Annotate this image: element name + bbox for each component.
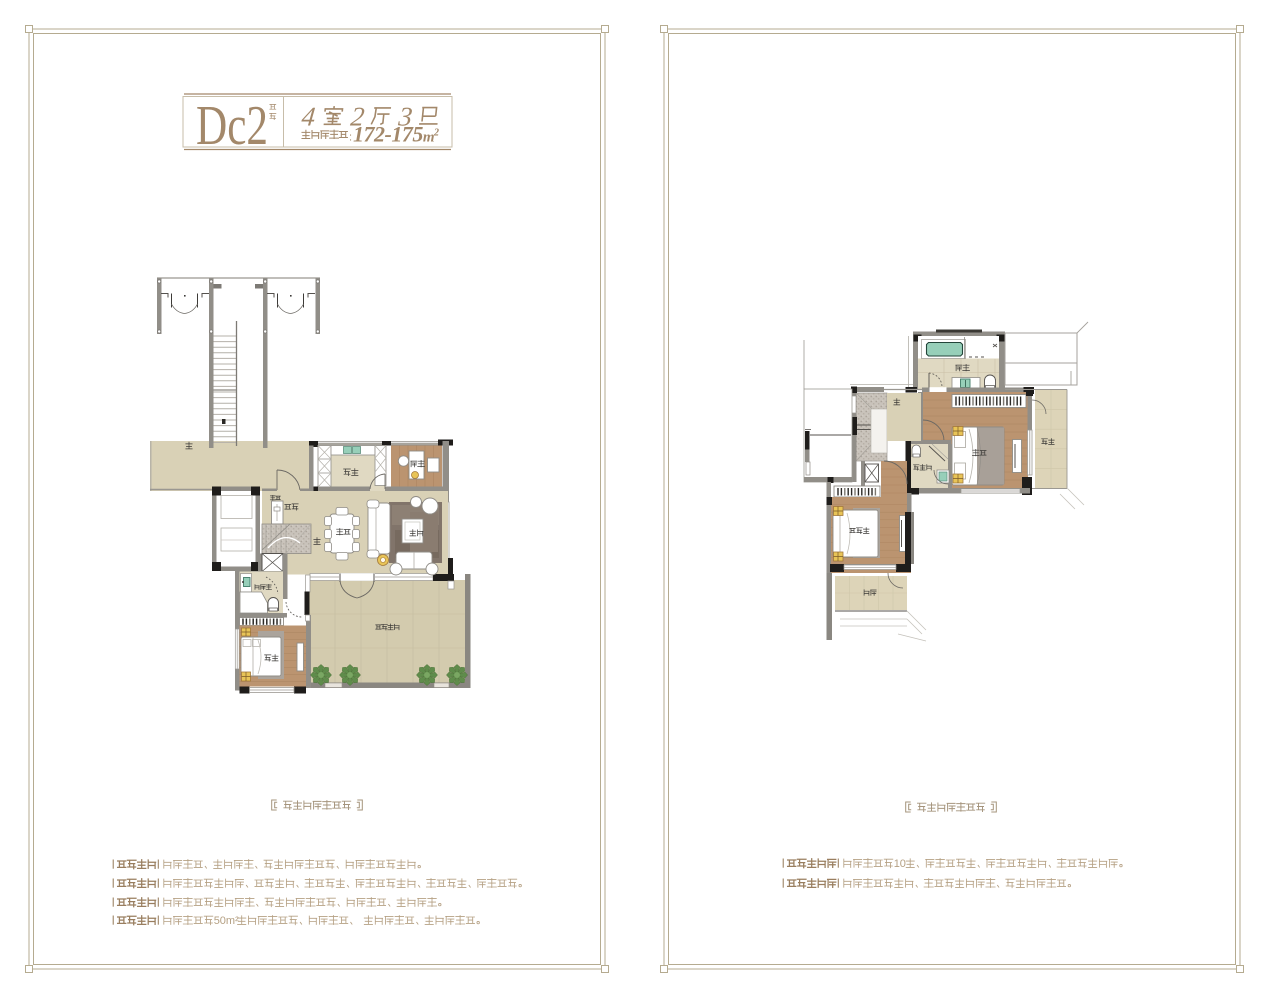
svg-text::: : <box>349 132 352 144</box>
svg-text:4: 4 <box>300 102 317 132</box>
svg-text:50m²: 50m² <box>214 915 239 927</box>
svg-text:10: 10 <box>894 858 906 870</box>
svg-text:Dc2: Dc2 <box>196 95 268 157</box>
svg-text:172-175m2: 172-175m2 <box>353 122 439 147</box>
